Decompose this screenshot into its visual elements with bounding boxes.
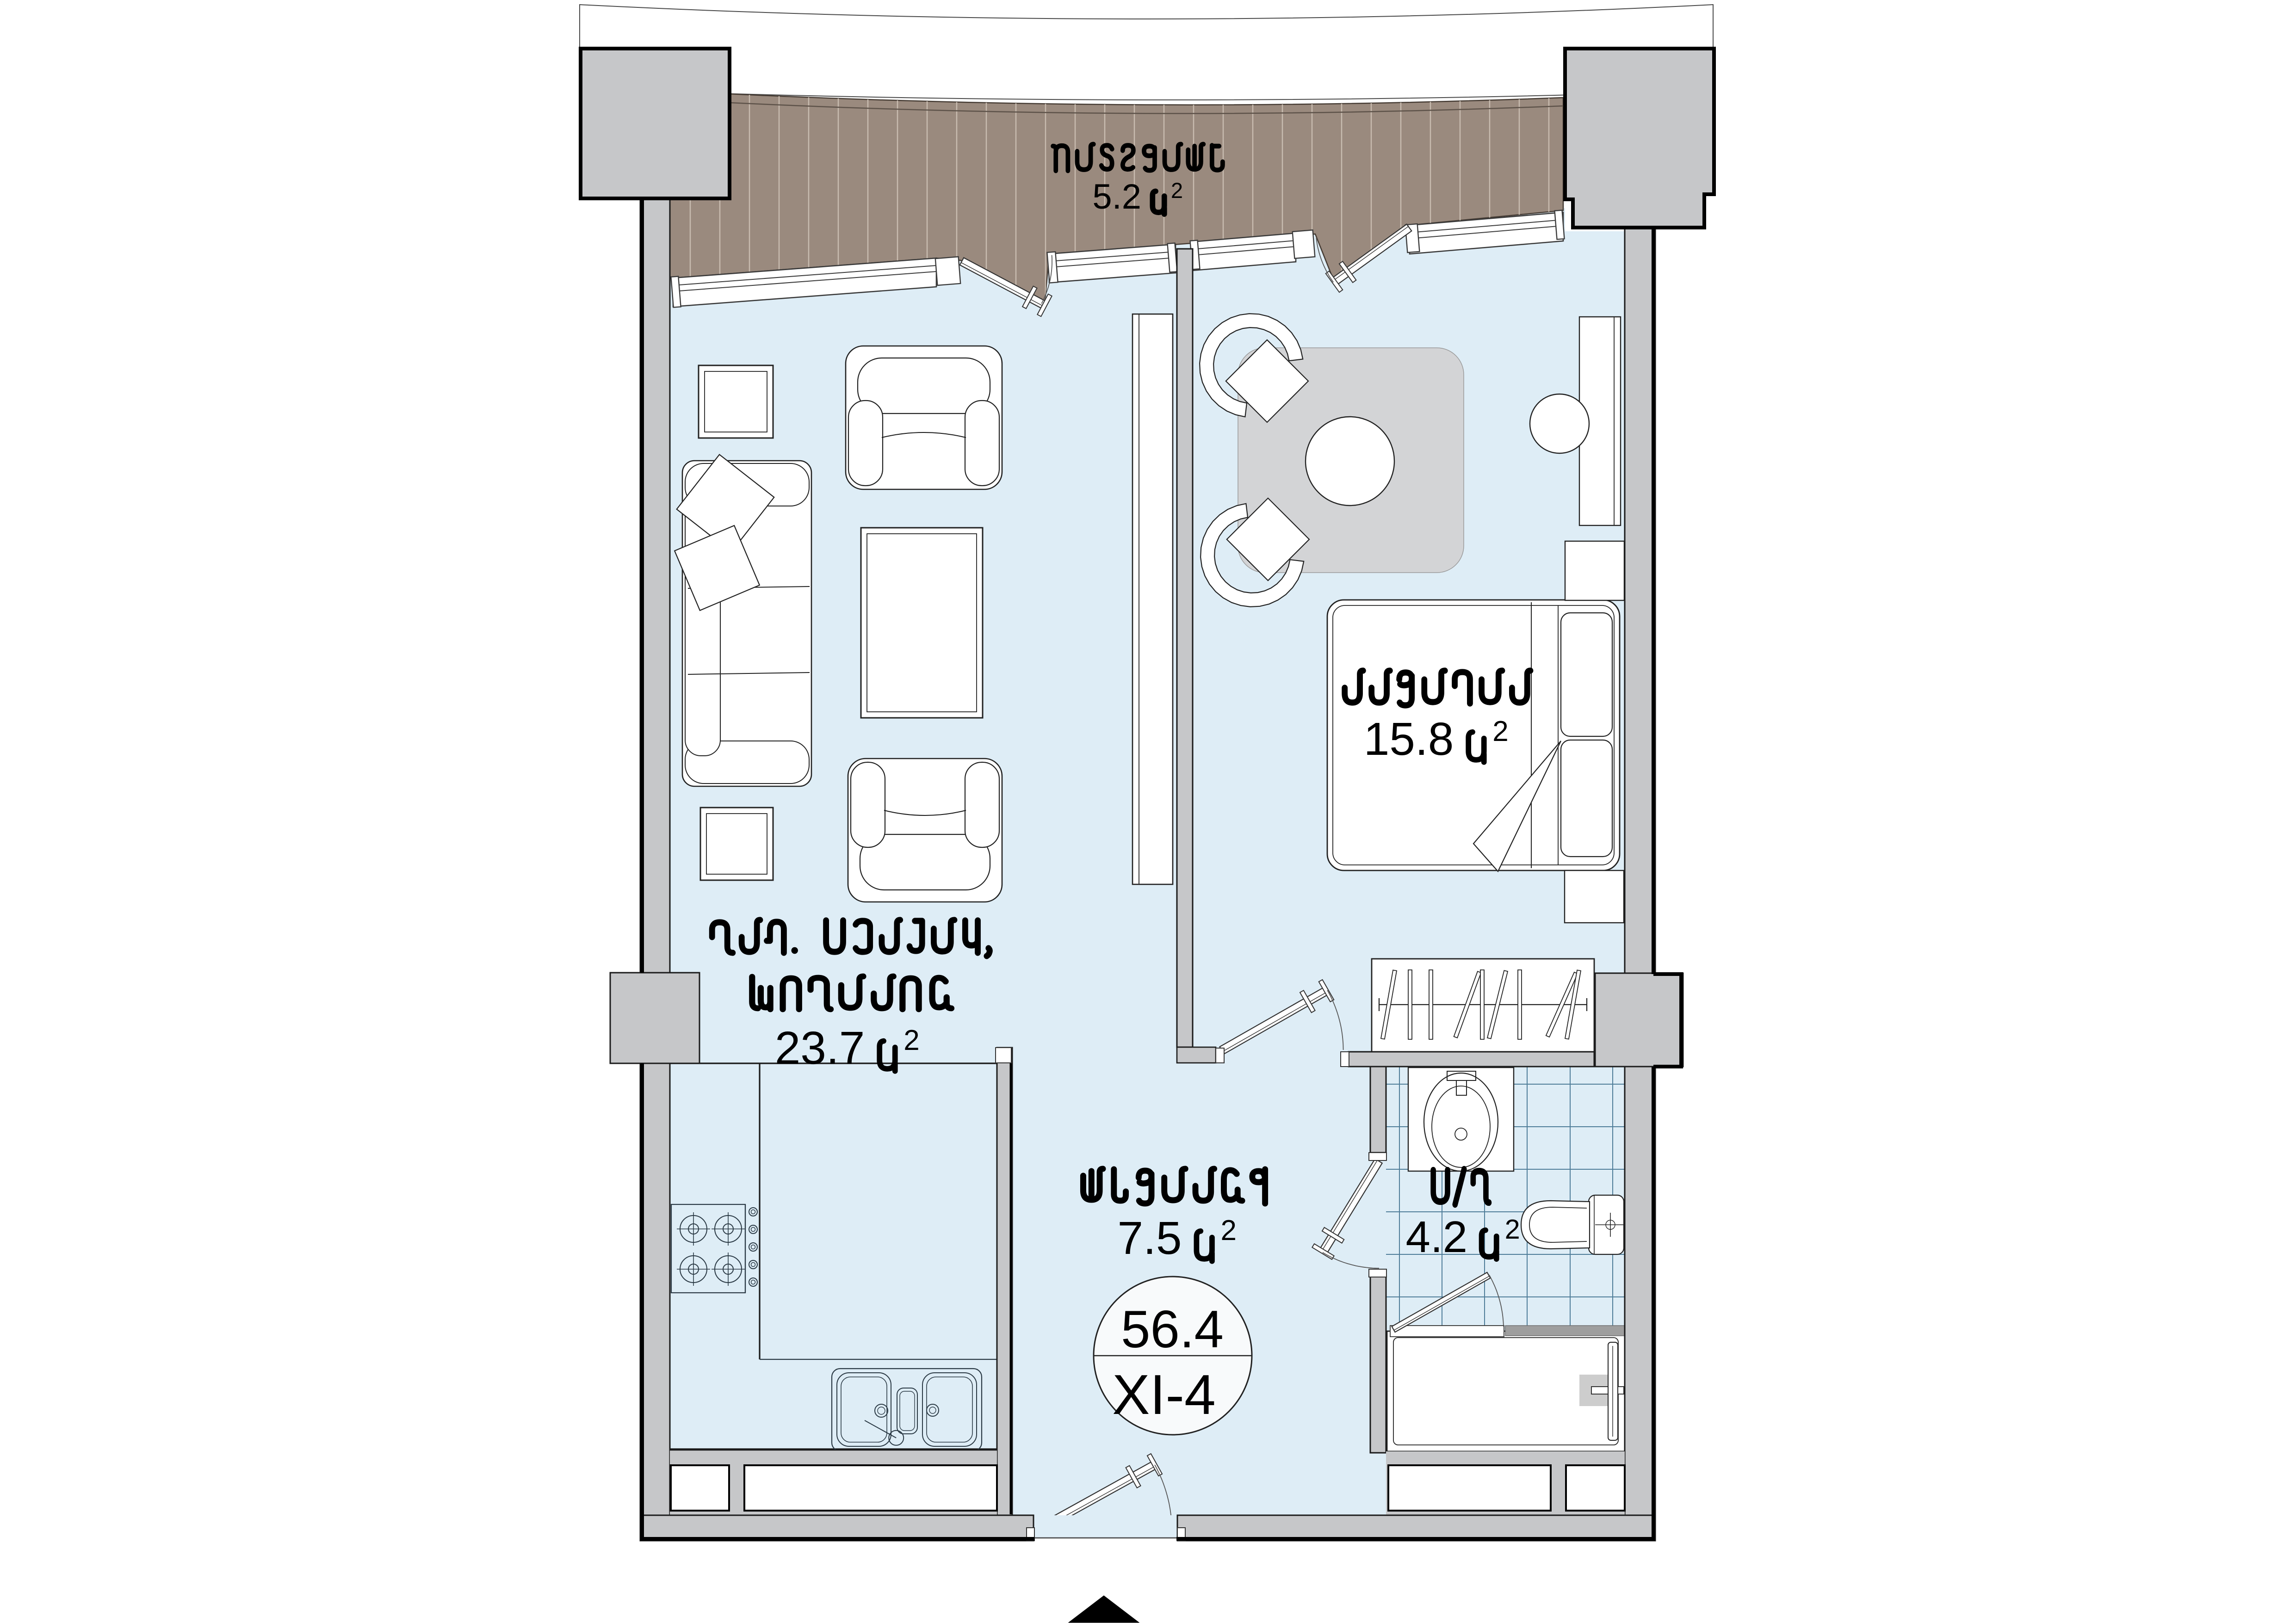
svg-text:2: 2 (1505, 1214, 1520, 1245)
svg-text:15.8: 15.8 (1364, 713, 1454, 765)
svg-text:7.5: 7.5 (1118, 1212, 1182, 1264)
svg-text:XI-4: XI-4 (1112, 1363, 1216, 1426)
svg-text:2: 2 (904, 1024, 919, 1056)
svg-text:2: 2 (1492, 716, 1508, 747)
svg-text:4.2: 4.2 (1406, 1212, 1467, 1262)
svg-text:5.2: 5.2 (1092, 177, 1141, 216)
svg-text:23.7: 23.7 (775, 1022, 865, 1074)
svg-text:2: 2 (1171, 178, 1183, 203)
svg-text:56.4: 56.4 (1121, 1300, 1224, 1359)
svg-text:2: 2 (1221, 1215, 1237, 1247)
